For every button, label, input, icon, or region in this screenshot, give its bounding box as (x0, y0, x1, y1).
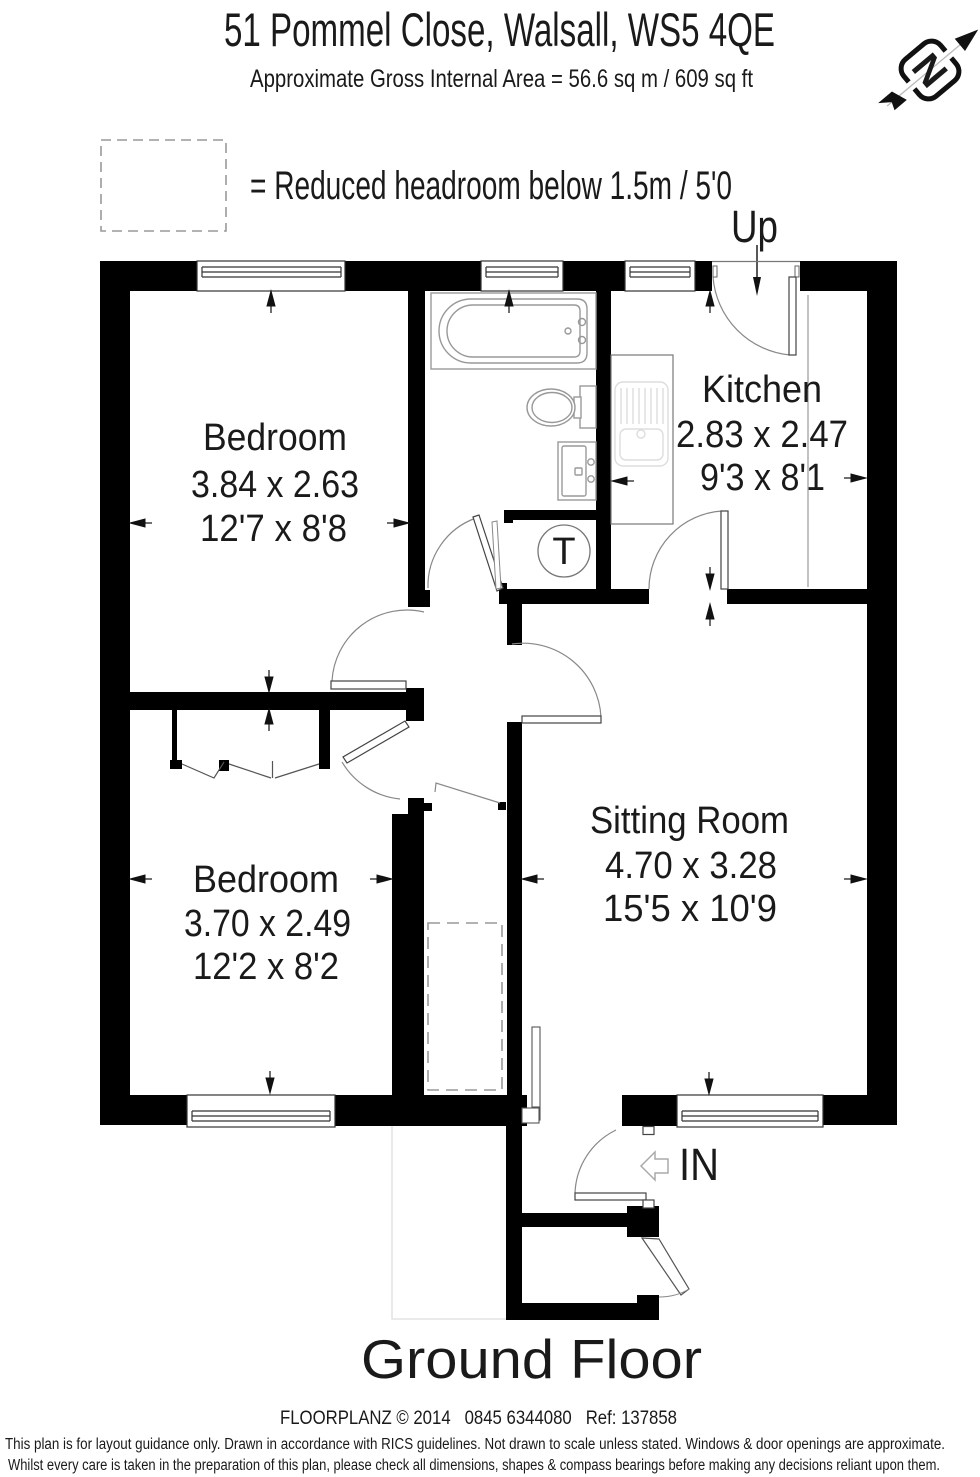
svg-text:Kitchen: Kitchen (702, 369, 822, 411)
svg-text:IN: IN (679, 1139, 719, 1190)
svg-text:Approximate Gross Internal Are: Approximate Gross Internal Area = 56.6 s… (250, 65, 753, 93)
svg-text:12'2 x 8'2: 12'2 x 8'2 (193, 946, 339, 988)
svg-text:Up: Up (731, 201, 778, 252)
svg-text:3.70 x 2.49: 3.70 x 2.49 (184, 903, 351, 945)
svg-text:FLOORPLANZ © 2014 0845 63440: FLOORPLANZ © 2014 0845 6344080 Ref: 1378… (280, 1408, 677, 1429)
svg-text:12'7 x 8'8: 12'7 x 8'8 (200, 508, 347, 550)
svg-text:Whilst every care is taken in: Whilst every care is taken in the prepar… (8, 1457, 940, 1474)
svg-text:This plan is for layout guidan: This plan is for layout guidance only. D… (5, 1436, 945, 1453)
svg-text:Ground Floor: Ground Floor (361, 1328, 702, 1390)
svg-text:Bedroom: Bedroom (203, 417, 347, 459)
svg-text:15'5 x 10'9: 15'5 x 10'9 (603, 888, 777, 930)
svg-text:2.83 x 2.47: 2.83 x 2.47 (676, 414, 848, 456)
svg-text:= Reduced headroom below 1.5m: = Reduced headroom below 1.5m / 5'0 (250, 164, 732, 208)
svg-text:9'3 x 8'1: 9'3 x 8'1 (700, 457, 825, 499)
svg-text:4.70 x 3.28: 4.70 x 3.28 (605, 845, 777, 887)
svg-text:Bedroom: Bedroom (193, 859, 339, 901)
svg-text:T: T (552, 531, 575, 573)
svg-text:Sitting Room: Sitting Room (590, 800, 789, 842)
svg-text:51 Pommel Close, Walsall, WS5: 51 Pommel Close, Walsall, WS5 4QE (224, 3, 775, 56)
svg-text:3.84 x 2.63: 3.84 x 2.63 (191, 464, 359, 506)
